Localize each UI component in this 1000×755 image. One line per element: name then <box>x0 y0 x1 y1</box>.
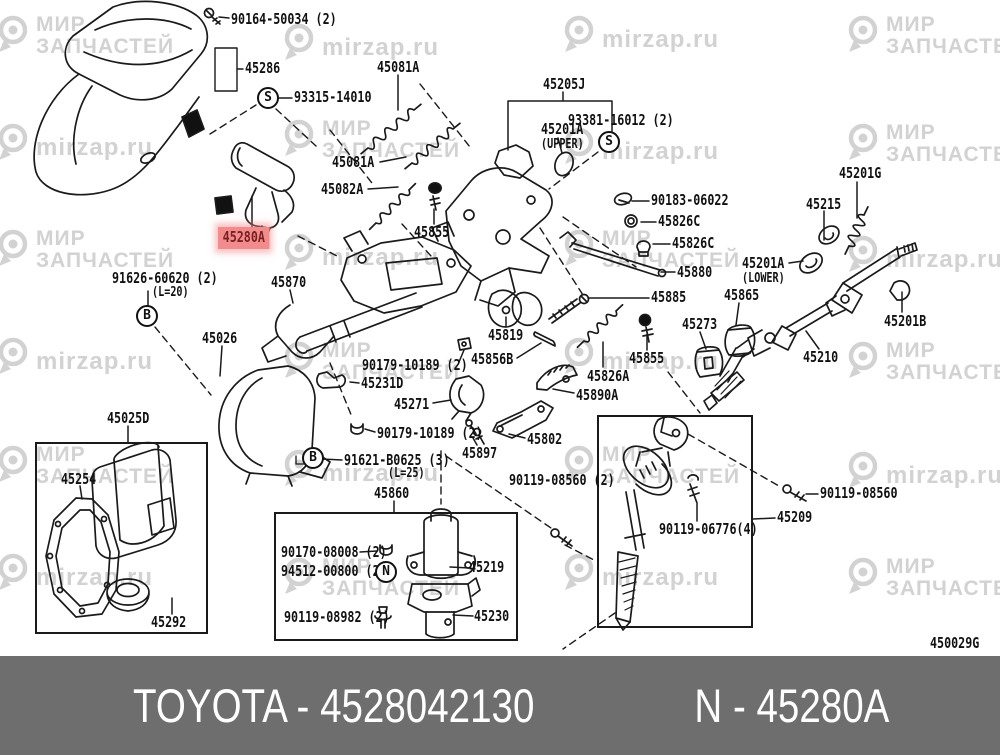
part-label-90179-10189-2: 90179-10189 (2) <box>362 358 468 373</box>
spring-coil <box>577 305 622 347</box>
part-label-upper: (UPPER) <box>541 138 584 151</box>
part-label-450029g: 450029G <box>930 636 979 651</box>
part-label-45855: 45855 <box>414 225 449 240</box>
part-label-45081a: 45081A <box>377 60 419 75</box>
spring-coil <box>361 104 421 153</box>
part-label-45870: 45870 <box>271 275 306 290</box>
callout-circle-s: S <box>598 131 620 153</box>
part-label-91626-60620-2: 91626-60620 (2) <box>112 271 218 286</box>
part-label-45802: 45802 <box>527 432 562 447</box>
part-label-l-25: (L=25) <box>388 467 425 480</box>
part-label-45880: 45880 <box>677 265 712 280</box>
spring-coil <box>405 123 460 168</box>
part-label-45026: 45026 <box>202 331 237 346</box>
part-label-45210: 45210 <box>803 350 838 365</box>
part-label-45254: 45254 <box>61 472 96 487</box>
part-label-90119-08982-2: 90119-08982 (2) <box>284 610 390 625</box>
part-label-45201b: 45201B <box>884 314 926 329</box>
part-label-45280a: 45280A <box>218 227 270 249</box>
part-label-45855: 45855 <box>629 351 664 366</box>
part-label-45025d: 45025D <box>107 411 149 426</box>
tilt-lever <box>232 143 295 191</box>
parts-diagram: МИРЗАПЧАСТЕЙmirzap.rumirzap.ruМИРЗАПЧАСТ… <box>0 0 1000 755</box>
spring-coil <box>370 184 416 230</box>
part-label-45231d: 45231D <box>361 376 403 391</box>
footer-bar: TOYOTA - 4528042130 N - 45280A <box>0 656 1000 755</box>
part-label-45856b: 45856B <box>471 352 513 367</box>
hole-cover <box>219 366 315 476</box>
column-cover-upper <box>65 1 207 99</box>
part-label-45826a: 45826A <box>587 369 629 384</box>
part-label-45209: 45209 <box>777 510 812 525</box>
part-label-45865: 45865 <box>724 288 759 303</box>
part-label-90119-08560: 90119-08560 <box>820 486 897 501</box>
part-label-90183-06022: 90183-06022 <box>651 193 728 208</box>
callout-circle-s: S <box>257 87 279 109</box>
part-label-90179-10189-2: 90179-10189 (2) <box>377 426 483 441</box>
part-label-90119-06776-4: 90119-06776(4) <box>659 522 758 537</box>
part-label-45082a: 45082A <box>321 182 363 197</box>
callout-circle-n: N <box>375 561 397 583</box>
part-label-45215: 45215 <box>806 197 841 212</box>
part-label-45201a: 45201A <box>742 256 784 271</box>
part-label-45271: 45271 <box>394 397 429 412</box>
callout-circle-b: B <box>136 305 158 327</box>
part-label-94512-00800-2: 94512-00800 (2) <box>281 564 387 579</box>
part-label-l-20: (L=20) <box>152 286 189 299</box>
part-label-45897: 45897 <box>462 446 497 461</box>
part-label-45273: 45273 <box>682 317 717 332</box>
part-label-45819: 45819 <box>488 328 523 343</box>
part-label-90119-08560-2: 90119-08560 (2) <box>509 473 615 488</box>
part-label-45885: 45885 <box>651 290 686 305</box>
part-label-93381-16012-2: 93381-16012 (2) <box>568 113 674 128</box>
part-label-45826c: 45826C <box>658 214 700 229</box>
column-cover-skirt <box>34 74 199 195</box>
part-label-45890a: 45890A <box>576 388 618 403</box>
part-label-45230: 45230 <box>474 609 509 624</box>
part-label-45826c: 45826C <box>672 236 714 251</box>
part-label-45286: 45286 <box>245 61 280 76</box>
part-label-45860: 45860 <box>374 486 409 501</box>
part-label-45292: 45292 <box>151 615 186 630</box>
callout-circle-b: B <box>302 447 324 469</box>
part-label-45205j: 45205J <box>543 77 585 92</box>
part-label-lower: (LOWER) <box>742 272 785 285</box>
part-label-90164-50034-2: 90164-50034 (2) <box>231 12 337 27</box>
part-label-45201a: 45201A <box>541 122 583 137</box>
part-label-90170-08008-2: 90170-08008 (2) <box>281 545 387 560</box>
part-label-45201g: 45201G <box>839 166 881 181</box>
footer-part-number: TOYOTA - 4528042130 <box>133 678 534 733</box>
part-label-45219: 45219 <box>469 560 504 575</box>
part-label-93315-14010: 93315-14010 <box>294 90 371 105</box>
footer-part-code: N - 45280A <box>695 678 890 733</box>
part-label-45081a: 45081A <box>332 155 374 170</box>
